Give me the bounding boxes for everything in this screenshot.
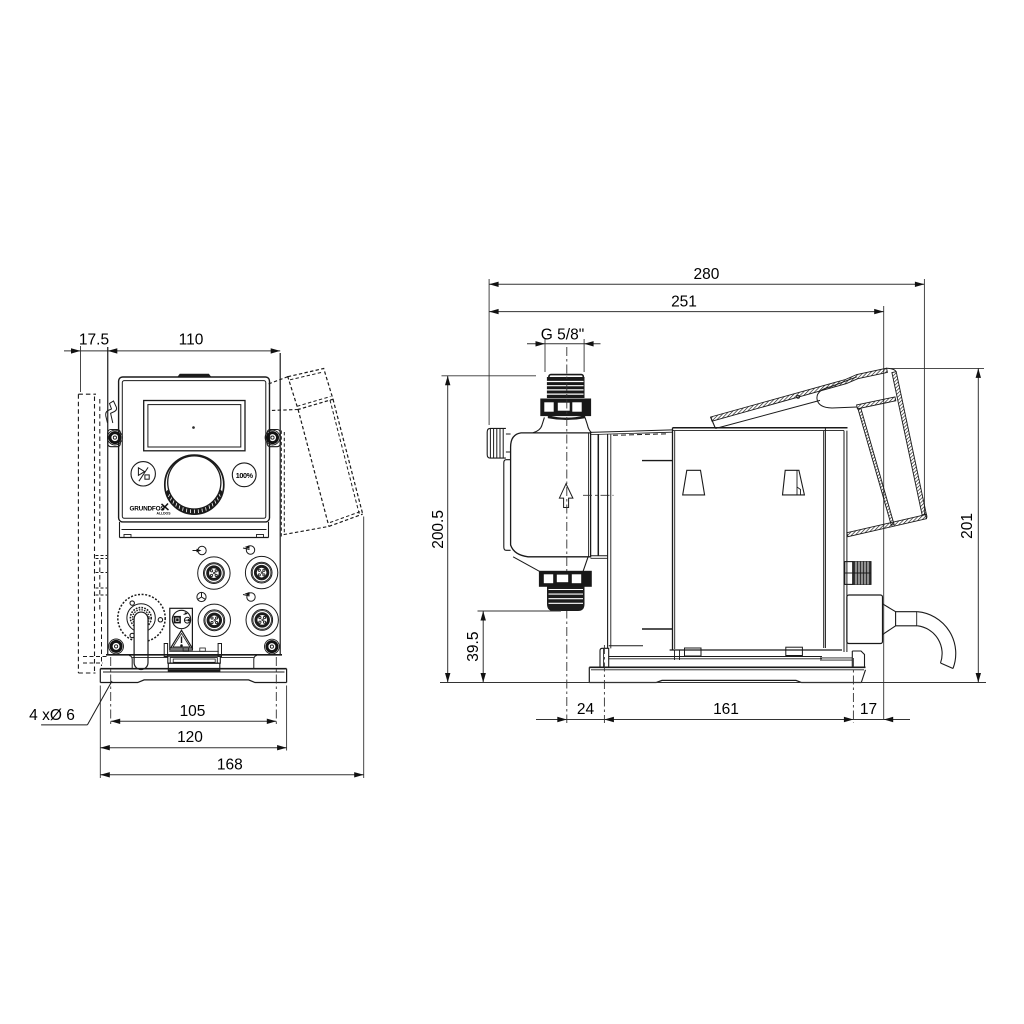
svg-text:168: 168 xyxy=(217,756,243,773)
svg-text:251: 251 xyxy=(671,293,697,310)
svg-text:G 5/8": G 5/8" xyxy=(541,327,584,344)
svg-text:201: 201 xyxy=(959,513,976,539)
svg-text:200.5: 200.5 xyxy=(430,510,447,549)
svg-text:24: 24 xyxy=(577,701,595,718)
svg-text:39.5: 39.5 xyxy=(465,632,482,662)
svg-text:4 xØ 6: 4 xØ 6 xyxy=(29,707,75,724)
svg-text:161: 161 xyxy=(713,701,739,718)
svg-text:105: 105 xyxy=(180,703,206,720)
svg-text:280: 280 xyxy=(693,266,719,283)
svg-text:17: 17 xyxy=(860,701,877,718)
svg-text:100%: 100% xyxy=(236,471,254,480)
svg-text:17.5: 17.5 xyxy=(79,332,109,349)
svg-text:120: 120 xyxy=(177,729,203,746)
svg-text:ALLDOS: ALLDOS xyxy=(157,511,172,515)
svg-text:110: 110 xyxy=(179,332,204,349)
